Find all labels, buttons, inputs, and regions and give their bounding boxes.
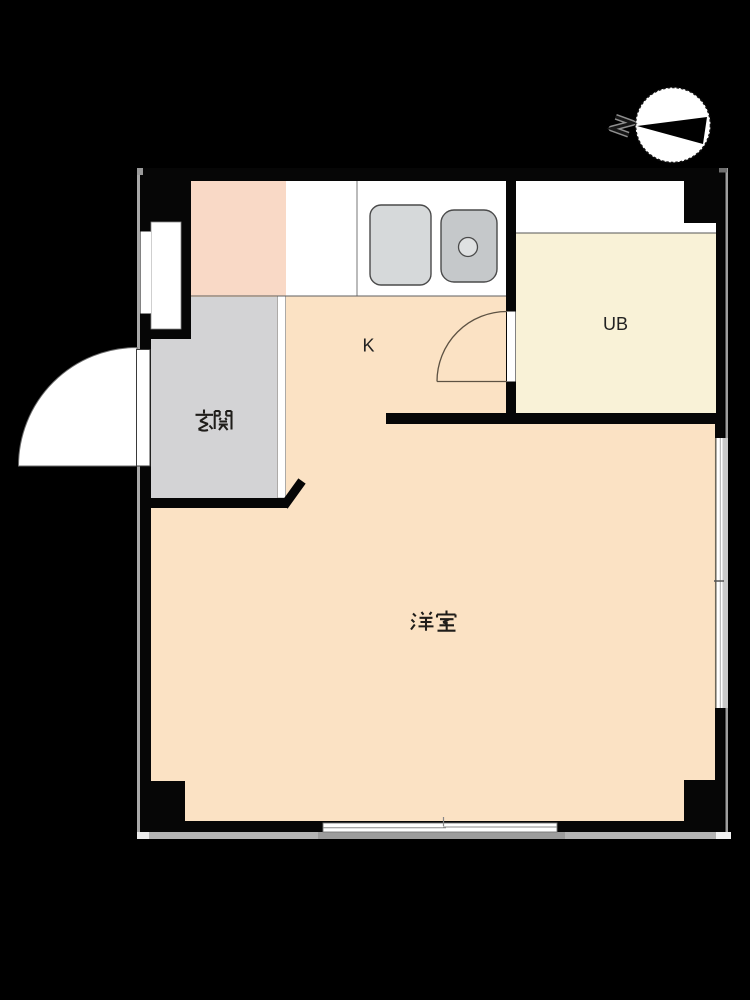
svg-text:UB: UB bbox=[603, 314, 628, 334]
svg-text:K: K bbox=[362, 336, 374, 356]
